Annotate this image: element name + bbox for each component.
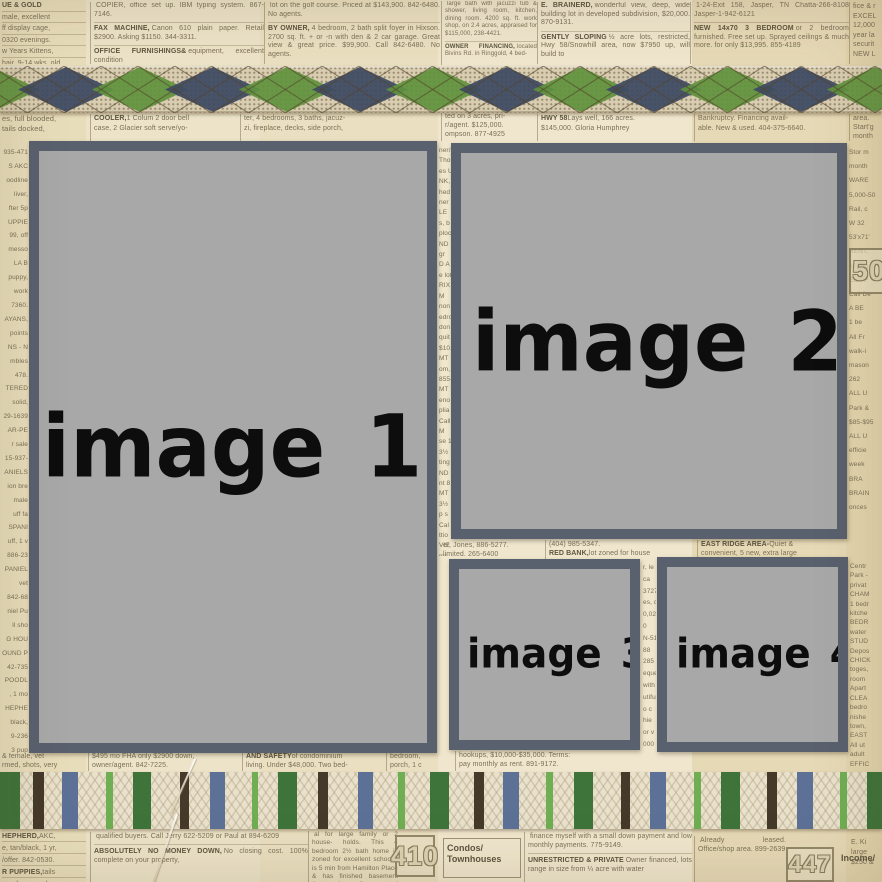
ribbon-stripe <box>650 772 666 829</box>
newspaper-column: UE & GOLDmale, excellentff display cage,… <box>2 2 86 64</box>
classified-ad: bedroom, <box>390 753 442 762</box>
classified-fragment: ting <box>439 458 451 468</box>
classified-ad: porch, 1 c <box>390 762 442 771</box>
newspaper-column: Already leased. Office/shop area. 899-26… <box>694 836 786 882</box>
ribbon-stripe <box>398 772 405 829</box>
classified-fragment: edro <box>439 313 451 323</box>
classified-fragment: solid, <box>2 396 28 410</box>
category-label-income: Income/ <box>838 849 882 881</box>
ribbon-stripe <box>133 772 151 829</box>
classified-fragment: oodline <box>2 174 28 188</box>
ribbon-stripe <box>546 772 553 829</box>
classified-fragment: M <box>439 292 451 302</box>
classified-fragment: quit <box>439 333 451 343</box>
ribbon-stripe <box>503 772 519 829</box>
classified-fragment: toges, <box>850 665 881 674</box>
ribbon-stripe <box>867 772 882 829</box>
classified-fragment: privat <box>850 581 881 590</box>
classified-ad: pay monthly as rent. 891-9172. <box>459 760 639 769</box>
newspaper-column: HEPHERD,AKC,e, tan/black, 1 yr,/offer. 8… <box>2 832 86 882</box>
classified-fragment: water <box>850 628 881 637</box>
classified-ad: BY OWNER,4 bedroom, 2 bath split foyer i… <box>268 22 440 59</box>
classified-ad: qualified buyers. Call Jerry 622-5209 or… <box>94 832 308 841</box>
classified-ad: ff display cage, <box>2 22 86 34</box>
newspaper-column: & female, vetrmed, shots, very <box>2 753 86 771</box>
classified-ad: month <box>853 132 882 141</box>
classified-fragment: SPANI <box>2 521 28 535</box>
newspaper-column: bedroom,porch, 1 c <box>386 753 442 771</box>
image-placeholder-2[interactable]: image 2 <box>451 143 847 539</box>
classified-fragment: vet <box>2 577 28 591</box>
category-number: 410 <box>391 841 439 872</box>
classified-ad: area. <box>853 114 882 123</box>
classified-fragment: niel Pu <box>2 605 28 619</box>
classified-ad: OWNER FINANCING,located Bivins Rd. in Ri… <box>445 41 537 59</box>
classified-fragment: 29-1639 <box>2 410 28 424</box>
image-placeholder-4[interactable]: image 4 <box>657 557 848 752</box>
newspaper-column: qualified buyers. Call Jerry 622-5209 or… <box>90 832 308 882</box>
argyle-ribbon <box>0 66 882 113</box>
classified-fragment: PANIEL <box>2 563 28 577</box>
classified-ad: HWY 58Lays well, 166 acres. <box>541 114 694 124</box>
ribbon-stripe <box>33 772 44 829</box>
classified-ad: (404) 985-5347. <box>549 540 695 549</box>
classified-ad: tails docked, <box>2 124 86 134</box>
classified-fragment: om, <box>439 365 451 375</box>
classified-fragment: 3727 <box>643 586 656 598</box>
classified-fragment: ner/oge <box>439 146 451 156</box>
classified-fragment: ttio <box>439 531 451 541</box>
newspaper-column: area.Start'gmonth <box>849 114 882 141</box>
classified-ad: rmed, shots, very <box>2 762 86 771</box>
classified-ad: 12,000 <box>853 21 882 31</box>
classified-fragment: r, le <box>643 562 656 574</box>
classified-fragment: r sale <box>2 438 28 452</box>
classified-fragment: MT <box>439 385 451 395</box>
classified-fragment: BRA <box>849 473 881 487</box>
classified-fragment: 478. <box>2 369 28 383</box>
classified-fragment: UPPIE <box>2 216 28 230</box>
classified-fragment: 262 <box>849 373 881 387</box>
classified-fragment: ANIELS <box>2 466 28 480</box>
classified-ad: ter, 4 bedrooms, 3 baths, jacuz- <box>244 114 384 124</box>
classified-fragment: mbles <box>2 355 28 369</box>
newspaper-edge-strip: Stor mmonthWARE5,000-50Rail, cW 3253'x71… <box>849 146 881 556</box>
category-number: 447 <box>788 851 831 879</box>
classified-fragment: ND <box>439 469 451 479</box>
classified-ad: GENTLY SLOPING½ acre lots, restricted, H… <box>541 31 690 60</box>
ribbon-stripe <box>318 772 328 829</box>
classified-fragment: o c <box>643 704 656 716</box>
classified-fragment: eque <box>643 668 656 680</box>
newspaper-column: fice & rEXCEL12,000year lasecuritNEW L <box>849 2 882 64</box>
classified-ad: HEPHERD,AKC, <box>2 832 86 841</box>
category-box-410: 410 <box>395 835 435 877</box>
classified-ad: es, full blooded, <box>2 114 86 124</box>
classified-fragment: BEDR <box>850 618 881 627</box>
classified-fragment: Cal <box>439 521 451 531</box>
category-label-condos: Condos/Townhouses <box>443 838 521 878</box>
classified-fragment: ll sho <box>2 619 28 633</box>
ribbon-stripe <box>621 772 630 829</box>
classified-fragment: 42-735 <box>2 661 28 675</box>
classified-ad: E. BRAINERD,wonderful view, deep, wide b… <box>541 2 690 28</box>
classified-ad: OFFICE FURNISHINGS&equipment, excellent … <box>94 45 264 64</box>
classified-fragment: 9-236 <box>2 730 28 744</box>
newspaper-column: COOLER,1 Colum 2 door bellcase, 2 Glacie… <box>90 114 262 141</box>
image-placeholder-1[interactable]: image 1 <box>29 141 437 753</box>
classified-fragment: uff fa <box>2 508 28 522</box>
classified-fragment: M <box>439 427 451 437</box>
classified-fragment: Stor m <box>849 146 881 160</box>
classified-fragment: 000 <box>643 739 656 748</box>
classified-ad: $495 mo FHA only $2900 down, <box>92 753 242 762</box>
classified-fragment: 5,000-50 <box>849 189 881 203</box>
classified-fragment: NK, <box>439 177 451 187</box>
ribbon-stripe <box>278 772 297 829</box>
classified-fragment: black, <box>2 716 28 730</box>
classified-ad: $145,000. Gloria Humphrey <box>541 124 694 134</box>
classified-ad: zi, fireplace, decks, side porch, <box>244 124 384 134</box>
classified-fragment: room <box>850 675 881 684</box>
classified-fragment: , 1 mo <box>2 688 28 702</box>
classified-ad: NEW 14x70 3 BEDROOMor 2 bedroom furnishe… <box>694 22 849 51</box>
classified-fragment: 0 <box>643 621 656 633</box>
ribbon-stripe <box>62 772 78 829</box>
classified-ad: ted on 3 acres, pri- <box>445 112 539 121</box>
classified-fragment: AR-PE <box>2 424 28 438</box>
classified-fragment: Depos <box>850 647 881 656</box>
classified-fragment: ner <box>439 198 451 208</box>
category-label-line: Condos/ <box>447 843 483 853</box>
classified-fragment: D A <box>439 260 451 270</box>
classified-fragment: non <box>439 302 451 312</box>
classified-fragment: MT <box>439 354 451 364</box>
classified-ad: al for large family or 2 house- holds. T… <box>312 831 398 882</box>
classified-ad: able. New & used. 404-375-6640. <box>698 124 849 134</box>
classified-fragment: 1 bedr <box>850 600 881 609</box>
newspaper-column: ter, 4 bedrooms, 3 baths, jacuz-zi, fire… <box>240 114 384 141</box>
classified-ad: 0320 evenings. <box>2 34 86 46</box>
classified-ad: w Years Kittens, <box>2 45 86 57</box>
classified-fragment: Centr <box>850 562 881 571</box>
ribbon-stripe <box>797 772 813 829</box>
classified-fragment: 285 <box>643 656 656 668</box>
classified-ad: & female, vet <box>2 753 86 762</box>
newspaper-column: lot on the golf course. Priced at $143,9… <box>264 2 440 64</box>
classified-ad: Bankruptcy. Financing avail- <box>698 114 849 124</box>
classified-fragment: messo <box>2 243 28 257</box>
classified-ad: fice & r <box>853 2 882 12</box>
classified-fragment: 88 <box>643 645 656 657</box>
ribbon-stripe <box>210 772 225 829</box>
classified-fragment: puppy, <box>2 271 28 285</box>
classified-fragment: NS - N <box>2 341 28 355</box>
classified-fragment: town, <box>850 722 881 731</box>
newspaper-column: al for large family or 2 house- holds. T… <box>308 831 398 882</box>
classified-fragment: ND <box>439 240 451 250</box>
newspaper-column: AND SAFETYof condominiumliving. Under $4… <box>242 753 388 771</box>
newspaper-column: 1-24-Exit 158, Jasper, TN Chatta-266-810… <box>690 2 849 64</box>
category-box-447: 447 <box>786 847 834 882</box>
classified-fragment: RIX <box>439 281 451 291</box>
classified-fragment: EFFIC <box>850 760 881 768</box>
classified-fragment: Call <box>439 417 451 427</box>
argyle-pattern <box>0 66 882 113</box>
classified-fragment: nt 8 <box>439 479 451 489</box>
argyle-diamond <box>827 67 882 112</box>
striped-ribbon <box>0 772 882 829</box>
classified-fragment: WARE <box>849 174 881 188</box>
classified-ad: case, 2 Glacier soft serve/yo- <box>94 124 262 134</box>
classified-fragment: 3½ <box>439 448 451 458</box>
classified-ad: lot on the golf course. Priced at $143,9… <box>268 2 440 19</box>
classified-fragment: onces <box>849 501 881 515</box>
ribbon-stripe <box>721 772 740 829</box>
newspaper-gap-strip: ner/ogeThompes UNK,hednerLEs, bploceNDgr… <box>439 146 451 556</box>
classified-fragment: kitche <box>850 609 881 618</box>
classified-fragment: HEPHE <box>2 702 28 716</box>
classified-fragment: All Fr <box>849 331 881 345</box>
classified-fragment: p s <box>439 510 451 520</box>
classified-fragment: MT <box>439 489 451 499</box>
classified-fragment: nishe <box>850 713 881 722</box>
classified-ad: ABSOLUTELY NO MONEY DOWN,No closing cost… <box>94 844 308 865</box>
ribbon-stripe <box>430 772 449 829</box>
classified-ad: er, Jones, 886-5277. <box>443 542 539 551</box>
classified-ad: /offer. 842-0530. <box>2 853 86 865</box>
classified-fragment: 3½ <box>439 500 451 510</box>
classified-ad: AND SAFETYof condominium <box>246 753 388 762</box>
scrapbook-page: UE & GOLDmale, excellentff display cage,… <box>0 0 882 882</box>
classified-fragment: eno <box>439 396 451 406</box>
classified-fragment: with <box>643 680 656 692</box>
classified-ad: ompson. 877-4925 <box>445 130 539 139</box>
classified-ad: Already leased. Office/shop area. 899-26… <box>698 836 786 854</box>
classified-ad: hair, 9-14 wks. old <box>2 57 86 64</box>
classified-fragment: 0,020 <box>643 609 656 621</box>
ribbon-stripe <box>574 772 593 829</box>
classified-fragment: utiful <box>643 692 656 704</box>
classified-fragment: A BE <box>849 302 881 316</box>
classified-fragment: 855- <box>439 375 451 385</box>
classified-fragment: uff, 1 v <box>2 535 28 549</box>
classified-fragment: ion bre <box>2 480 28 494</box>
classified-fragment: $85-$95 <box>849 416 881 430</box>
ribbon-stripe <box>252 772 258 829</box>
classified-ad: UE & GOLD <box>2 2 86 11</box>
classified-fragment: hie <box>643 715 656 727</box>
classified-fragment: adult <box>850 750 881 759</box>
classified-fragment: ploce <box>439 229 451 239</box>
classified-fragment: or v <box>643 727 656 739</box>
image-placeholder-3[interactable]: image 3 <box>449 559 640 750</box>
classified-fragment: ALL U <box>849 430 881 444</box>
classified-fragment: Thomp <box>439 156 451 166</box>
ribbon-stripe <box>358 772 373 829</box>
image-placeholder-label: image 4 <box>667 631 848 678</box>
ribbon-stripe <box>474 772 484 829</box>
classified-fragment: male <box>2 494 28 508</box>
classified-ad: large bath with jacuzzi tub & shower, li… <box>445 1 537 38</box>
newspaper-column: Bankruptcy. Financing avail-able. New & … <box>694 114 849 141</box>
classified-ad: living. Under $48,000. Two bed- <box>246 762 388 771</box>
classified-ad: COPIER, office set up. IBM typing system… <box>94 2 264 19</box>
classified-ad: e, tan/black, 1 yr, <box>2 841 86 853</box>
classified-fragment: es, c <box>643 597 656 609</box>
classified-ad: aned, wormed <box>2 877 86 882</box>
classified-fragment: s, b <box>439 219 451 229</box>
classified-fragment: fter 5p <box>2 202 28 216</box>
classified-ad: FAX MACHINE,Canon 610 plain paper. Retai… <box>94 22 264 42</box>
classified-fragment: 7360. <box>2 299 28 313</box>
newspaper-gap-strip: r, leca3727es, c0,0200N-5188285equewithu… <box>643 562 656 748</box>
classified-fragment: CLEA <box>850 694 881 703</box>
classified-ad: NEW L <box>853 50 882 60</box>
classified-fragment: hed <box>439 188 451 198</box>
classified-fragment: POODL <box>2 674 28 688</box>
newspaper-edge-strip: CentrPark -privatCHAM1 bedrkitcheBEDRwat… <box>850 562 881 768</box>
ribbon-stripe <box>694 772 701 829</box>
classified-fragment: 886-23 <box>2 549 28 563</box>
ribbon-stripe <box>840 772 847 829</box>
classified-fragment: Park - <box>850 571 881 580</box>
classified-fragment: 935-471 <box>2 146 28 160</box>
category-label-line: Townhouses <box>447 854 501 864</box>
classified-ad: male, excellent <box>2 11 86 23</box>
classified-fragment: bedro <box>850 703 881 712</box>
classified-fragment: walk-i <box>849 345 881 359</box>
classified-fragment: $10, <box>439 344 451 354</box>
classified-fragment: Apart <box>850 684 881 693</box>
classified-fragment: plia <box>439 406 451 416</box>
classified-fragment: work <box>2 285 28 299</box>
classified-fragment: BRAIN <box>849 487 881 501</box>
newspaper-column: $495 mo FHA only $2900 down,owner/agent.… <box>88 753 242 771</box>
newspaper-column: ted on 3 acres, pri-r/agent. $125,000.om… <box>441 112 539 141</box>
classified-fragment: W 32 <box>849 217 881 231</box>
classified-fragment: TERED <box>2 382 28 396</box>
newspaper-column: finance myself with a small down payment… <box>524 832 692 882</box>
classified-ad: finance myself with a small down payment… <box>528 832 692 850</box>
classified-fragment: CHAM <box>850 590 881 599</box>
classified-fragment: e lot <box>439 271 451 281</box>
classified-fragment: Rail, c <box>849 203 881 217</box>
classified-fragment: points <box>2 327 28 341</box>
classified-ad: UNRESTRICTED & PRIVATEOwner financed, lo… <box>528 853 692 874</box>
newspaper-column: COPIER, office set up. IBM typing system… <box>90 2 264 64</box>
classified-ad: 1-24-Exit 158, Jasper, TN Chatta-266-810… <box>694 2 849 19</box>
classified-fragment: LE <box>439 208 451 218</box>
newspaper-column: E. BRAINERD,wonderful view, deep, wide b… <box>537 2 690 64</box>
classified-fragment: All ut <box>850 741 881 750</box>
classified-fragment: efficie <box>849 444 881 458</box>
classified-fragment: week <box>849 458 881 472</box>
classified-fragment: LA B <box>2 257 28 271</box>
classified-fragment: Park & <box>849 402 881 416</box>
newspaper-column: HWY 58Lays well, 166 acres.$145,000. Glo… <box>537 114 694 141</box>
classified-fragment: mason <box>849 359 881 373</box>
classified-ad: r/agent. $125,000. <box>445 121 539 130</box>
category-label-line: Income/ <box>841 853 875 863</box>
newspaper-column: hookups, $10,000-$35,000. Terms:pay mont… <box>455 751 639 771</box>
classified-fragment: 99, off <box>2 229 28 243</box>
classified-ad: year la <box>853 31 882 41</box>
classified-fragment: ALL U <box>849 387 881 401</box>
classified-ad: securit <box>853 40 882 50</box>
classified-fragment: 842-68 <box>2 591 28 605</box>
classified-fragment: EAST <box>850 731 881 740</box>
classified-fragment: CHICK <box>850 656 881 665</box>
ribbon-stripe <box>767 772 777 829</box>
classified-fragment: AYANS, <box>2 313 28 327</box>
classified-ad: owner/agent. 842-7225. <box>92 762 242 771</box>
classified-fragment: month <box>849 160 881 174</box>
classified-fragment: N-51 <box>643 633 656 645</box>
newspaper-column: es, full blooded,tails docked, <box>2 114 86 141</box>
classified-fragment: 53'x71' <box>849 231 881 245</box>
newspaper-column: er, Jones, 886-5277.limited. 265-6400 <box>443 542 539 559</box>
classified-fragment: E. Ki <box>851 838 880 848</box>
classified-ad: EXCEL <box>853 12 882 22</box>
classified-fragment: OUND P <box>2 647 28 661</box>
classified-fragment: se 1 <box>439 437 451 447</box>
newspaper-column: large bath with jacuzzi tub & shower, li… <box>441 1 537 65</box>
classified-ad: Start'g <box>853 123 882 132</box>
image-placeholder-label: image 2 <box>461 292 843 390</box>
category-box-50: 50 <box>849 248 882 294</box>
classified-fragment: 15-937- <box>2 452 28 466</box>
classified-ad: EAST RIDGE AREA-Quiet & <box>701 540 849 549</box>
classified-ad: R PUPPIES,tails <box>2 865 86 877</box>
ribbon-stripe <box>106 772 113 829</box>
classified-fragment: es U <box>439 167 451 177</box>
classified-ad: limited. 265-6400 <box>443 551 539 559</box>
category-number: 50 <box>852 255 882 287</box>
classified-fragment: G HOU <box>2 633 28 647</box>
classified-fragment: STUD <box>850 637 881 646</box>
image-placeholder-label: image 1 <box>39 397 422 497</box>
image-placeholder-label: image 3 <box>459 631 640 678</box>
classified-fragment: gr <box>439 250 451 260</box>
ribbon-stripe <box>0 772 20 829</box>
newspaper-edge-strip: 935-471S AKCoodlineliver,fter 5pUPPIE99,… <box>2 146 28 768</box>
classified-ad: hookups, $10,000-$35,000. Terms: <box>459 751 639 760</box>
classified-fragment: don <box>439 323 451 333</box>
classified-fragment: liver, <box>2 188 28 202</box>
classified-fragment: S AKC <box>2 160 28 174</box>
classified-fragment: 1 be <box>849 316 881 330</box>
classified-fragment: ca <box>643 574 656 586</box>
classified-ad: COOLER,1 Colum 2 door bell <box>94 114 262 124</box>
